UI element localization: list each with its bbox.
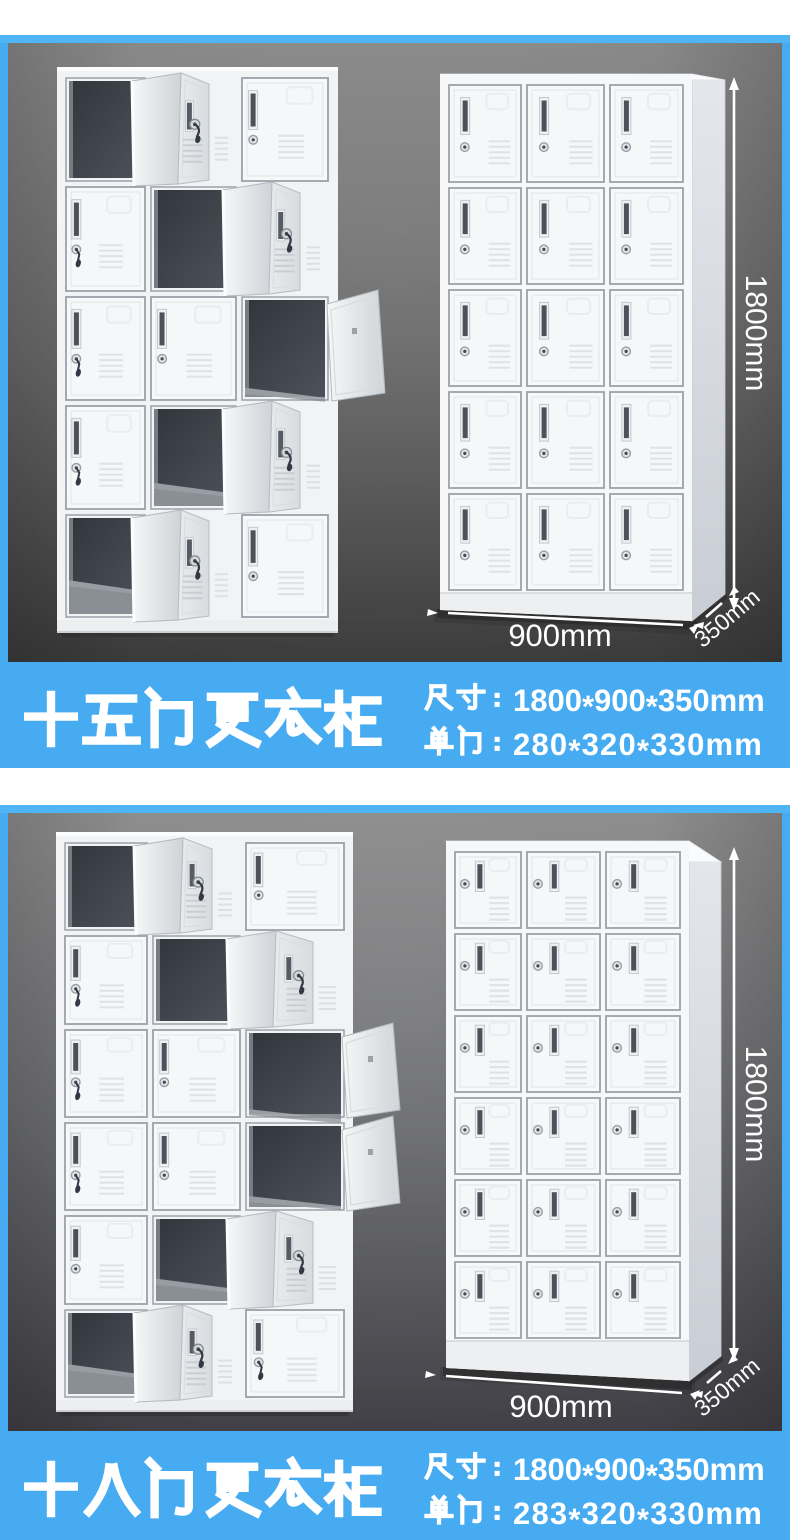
svg-text:283*320*330mm: 283*320*330mm — [513, 1496, 763, 1537]
svg-text:1800*900*350mm: 1800*900*350mm — [513, 683, 765, 724]
svg-text:280*320*330mm: 280*320*330mm — [513, 727, 763, 768]
svg-text:1800mm: 1800mm — [739, 1046, 772, 1163]
svg-text:900mm: 900mm — [509, 1389, 612, 1424]
svg-text:1800mm: 1800mm — [739, 275, 772, 392]
svg-text:900mm: 900mm — [508, 618, 611, 653]
svg-text:1800*900*350mm: 1800*900*350mm — [513, 1452, 765, 1493]
